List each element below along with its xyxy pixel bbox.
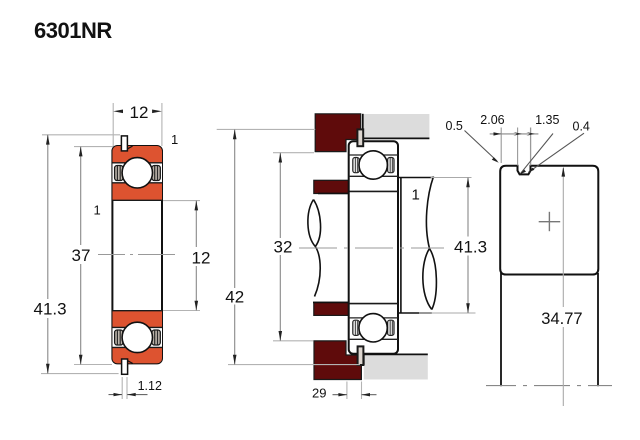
svg-text:42: 42 <box>225 288 244 307</box>
svg-text:41.3: 41.3 <box>34 300 67 319</box>
svg-text:0.4: 0.4 <box>573 120 590 134</box>
svg-text:6301NR: 6301NR <box>34 18 112 43</box>
svg-text:34.77: 34.77 <box>541 310 582 328</box>
svg-text:12: 12 <box>192 248 211 267</box>
svg-text:1: 1 <box>94 203 101 218</box>
svg-text:29: 29 <box>312 386 326 401</box>
svg-text:0.5: 0.5 <box>446 119 463 133</box>
svg-text:37: 37 <box>72 246 91 265</box>
svg-text:12: 12 <box>130 103 149 122</box>
svg-text:2.06: 2.06 <box>480 113 504 127</box>
svg-text:32: 32 <box>274 238 293 257</box>
svg-text:1.12: 1.12 <box>138 379 162 393</box>
svg-text:1: 1 <box>412 187 420 204</box>
svg-text:41.3: 41.3 <box>454 237 487 256</box>
svg-text:1: 1 <box>171 132 178 147</box>
svg-text:1.35: 1.35 <box>535 113 559 127</box>
